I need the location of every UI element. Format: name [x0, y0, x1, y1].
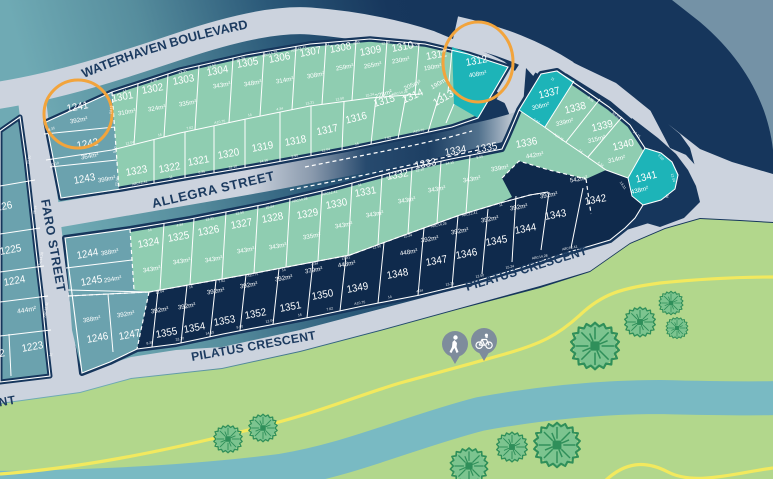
svg-text:16: 16 — [298, 313, 303, 318]
svg-text:14: 14 — [388, 295, 393, 300]
svg-text:16: 16 — [158, 133, 163, 138]
svg-text:16: 16 — [355, 142, 360, 147]
svg-text:16: 16 — [665, 194, 670, 199]
svg-text:14: 14 — [248, 113, 253, 118]
svg-text:11: 11 — [49, 353, 54, 357]
